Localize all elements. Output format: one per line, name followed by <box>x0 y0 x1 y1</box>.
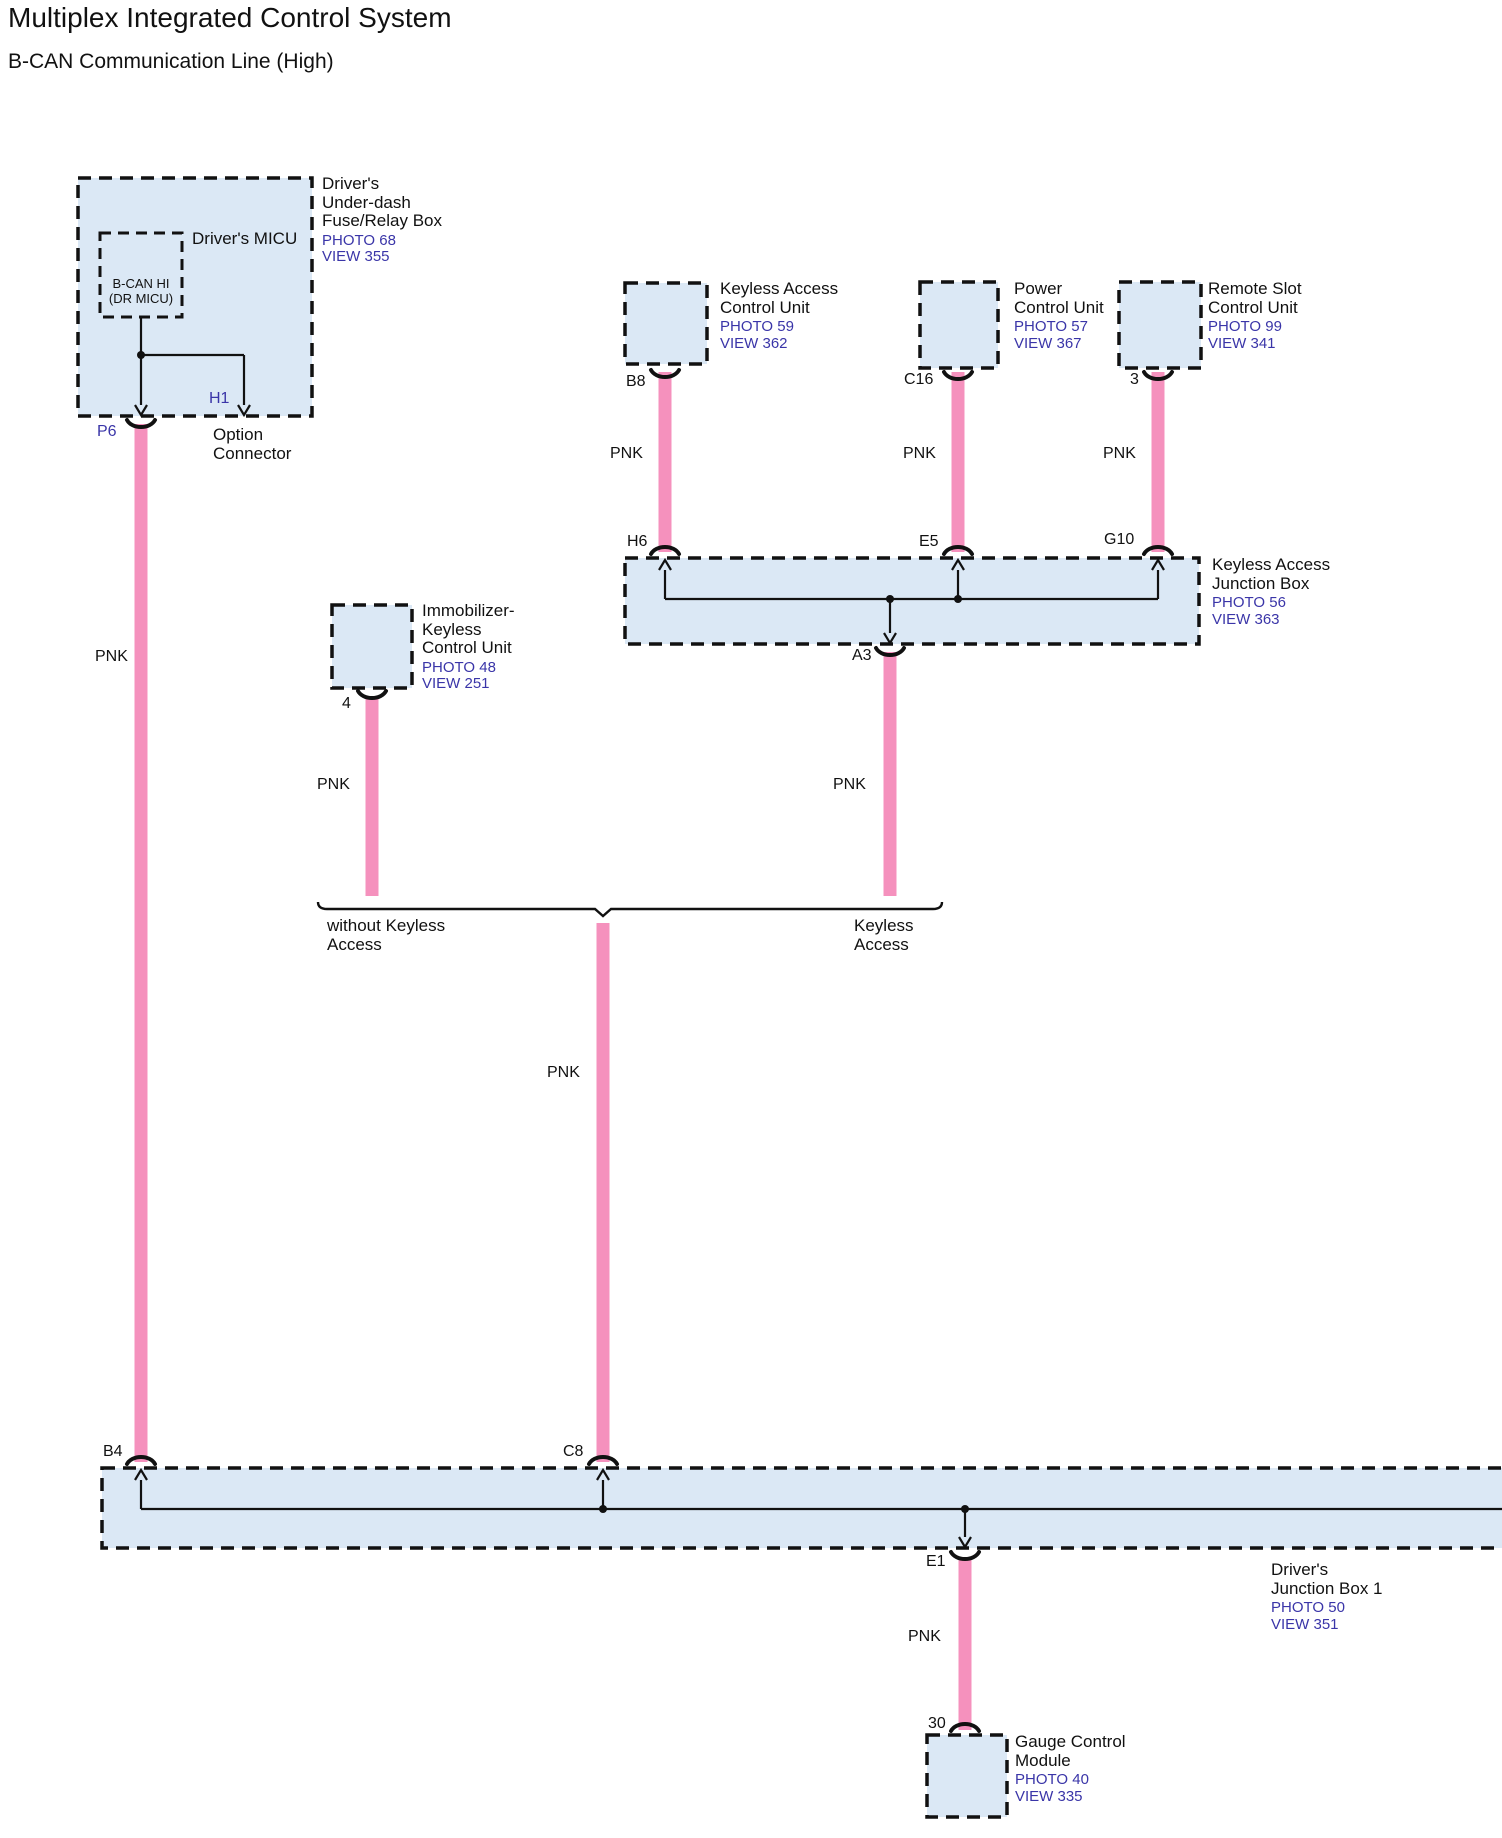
immobilizer-keyless-control-unit-label: Immobilizer- Keyless Control Unit PHOTO … <box>422 602 515 693</box>
keyless-access-control-unit-outline <box>625 283 707 364</box>
wire-e1-to-30 <box>959 1558 972 1730</box>
junction-dots <box>137 351 969 1513</box>
wire-color-label: PNK <box>1103 445 1136 463</box>
keyless-access-junction-box-label: Keyless Access Junction Box PHOTO 56 VIE… <box>1212 556 1330 628</box>
drivers-micu-label: Driver's MICU <box>192 230 297 249</box>
wire-c16-to-e5 <box>952 372 965 552</box>
photo-ref: PHOTO 57 <box>1014 319 1104 336</box>
component-name-line: Junction Box <box>1212 575 1330 594</box>
view-ref: VIEW 363 <box>1212 612 1330 629</box>
keyless-access-control-unit-label: Keyless Access Control Unit PHOTO 59 VIE… <box>720 280 838 352</box>
wire-branch-to-c8 <box>597 923 610 1462</box>
photo-ref: PHOTO 59 <box>720 319 838 336</box>
branch-brace <box>318 902 942 916</box>
label-line: Connector <box>213 445 291 464</box>
connector-4 <box>358 691 386 698</box>
label-line: without Keyless <box>327 917 445 936</box>
view-ref: VIEW 341 <box>1208 336 1302 353</box>
wire-color-label: PNK <box>903 445 936 463</box>
pin-label-e5: E5 <box>919 533 939 551</box>
view-ref: VIEW 367 <box>1014 336 1104 353</box>
wire-color-label: PNK <box>610 445 643 463</box>
component-ref: PHOTO 40 VIEW 335 <box>1015 1772 1126 1805</box>
branch-label-without-keyless: without Keyless Access <box>327 917 445 954</box>
wiring-diagram-page: Multiplex Integrated Control System B-CA… <box>0 0 1502 1838</box>
component-name-line: Driver's <box>322 175 442 194</box>
label-line: Access <box>854 936 914 955</box>
junction-dot <box>961 1505 969 1513</box>
component-name-line: Power <box>1014 280 1104 299</box>
view-ref: VIEW 355 <box>322 249 442 266</box>
component-ref: PHOTO 48 VIEW 251 <box>422 660 515 693</box>
pin-label-e1: E1 <box>926 1553 946 1571</box>
component-ref: PHOTO 56 VIEW 363 <box>1212 595 1330 628</box>
wire-color-label: PNK <box>95 648 128 666</box>
keyless-access-junction-box-outline <box>625 558 1199 644</box>
component-ref: PHOTO 68 VIEW 355 <box>322 233 442 266</box>
component-name-line: Keyless <box>422 621 515 640</box>
page-subtitle: B-CAN Communication Line (High) <box>8 50 334 74</box>
node-line: B-CAN HI <box>100 276 182 291</box>
view-ref: VIEW 335 <box>1015 1789 1126 1806</box>
component-ref: PHOTO 50 VIEW 351 <box>1271 1600 1383 1633</box>
component-name-line: Immobilizer- <box>422 602 515 621</box>
view-ref: VIEW 362 <box>720 336 838 353</box>
photo-ref: PHOTO 56 <box>1212 595 1330 612</box>
photo-ref: PHOTO 48 <box>422 660 515 677</box>
power-control-unit-label: Power Control Unit PHOTO 57 VIEW 367 <box>1014 280 1104 352</box>
drivers-junction-box-1-label: Driver's Junction Box 1 PHOTO 50 VIEW 35… <box>1271 1561 1383 1633</box>
power-control-unit-outline <box>920 282 998 368</box>
bcan-hi-node-label: B-CAN HI (DR MICU) <box>100 276 182 306</box>
pin-label-h6: H6 <box>627 533 647 551</box>
remote-slot-control-unit-label: Remote Slot Control Unit PHOTO 99 VIEW 3… <box>1208 280 1302 352</box>
junction-dot <box>954 595 962 603</box>
remote-slot-control-unit-outline <box>1119 282 1201 368</box>
option-connector-label: Option Connector <box>213 426 291 463</box>
wire-color-label: PNK <box>833 776 866 794</box>
pin-label-b8: B8 <box>626 373 646 391</box>
component-name-line: Module <box>1015 1752 1126 1771</box>
connector-e1 <box>951 1552 979 1559</box>
pin-label-30: 30 <box>928 1715 946 1733</box>
pin-label-g10: G10 <box>1104 531 1134 549</box>
component-name-line: Driver's <box>1271 1561 1383 1580</box>
junction-dot <box>886 595 894 603</box>
connector-p6 <box>127 420 155 427</box>
component-ref: PHOTO 57 VIEW 367 <box>1014 319 1104 352</box>
pin-label-c16: C16 <box>904 371 933 389</box>
junction-dot <box>137 351 145 359</box>
connector-a3 <box>876 648 904 655</box>
pin-label-3: 3 <box>1130 371 1139 389</box>
component-name-line: Control Unit <box>1208 299 1302 318</box>
pin-label-4: 4 <box>342 695 351 713</box>
photo-ref: PHOTO 40 <box>1015 1772 1126 1789</box>
wire-b8-to-h6 <box>659 372 672 552</box>
wire-color-label: PNK <box>317 776 350 794</box>
wire-color-label: PNK <box>547 1064 580 1082</box>
component-name-line: Remote Slot <box>1208 280 1302 299</box>
view-ref: VIEW 251 <box>422 676 515 693</box>
view-ref: VIEW 351 <box>1271 1617 1383 1634</box>
wire-color-label: PNK <box>908 1628 941 1646</box>
wire-a3-to-branch <box>884 652 897 896</box>
pin-label-b4: B4 <box>103 1443 123 1461</box>
branch-label-keyless: Keyless Access <box>854 917 914 954</box>
component-name-line: Fuse/Relay Box <box>322 212 442 231</box>
gauge-control-module-label: Gauge Control Module PHOTO 40 VIEW 335 <box>1015 1733 1126 1805</box>
pin-label-c8: C8 <box>563 1443 583 1461</box>
immobilizer-keyless-control-unit-outline <box>332 605 412 688</box>
pin-label-h1: H1 <box>209 390 229 408</box>
page-title: Multiplex Integrated Control System <box>8 2 452 34</box>
component-name-line: Keyless Access <box>720 280 838 299</box>
component-name-line: Control Unit <box>1014 299 1104 318</box>
component-name-line: Control Unit <box>422 639 515 658</box>
label-line: Option <box>213 426 291 445</box>
component-name-line: Control Unit <box>720 299 838 318</box>
wire-4-to-branch <box>366 696 379 896</box>
fuse-relay-box-label: Driver's Under-dash Fuse/Relay Box PHOTO… <box>322 175 442 266</box>
pin-label-p6: P6 <box>97 423 117 441</box>
junction-dot <box>599 1505 607 1513</box>
component-ref: PHOTO 59 VIEW 362 <box>720 319 838 352</box>
component-ref: PHOTO 99 VIEW 341 <box>1208 319 1302 352</box>
component-name-line: Keyless Access <box>1212 556 1330 575</box>
node-line: (DR MICU) <box>100 291 182 306</box>
gauge-control-module-outline <box>927 1735 1007 1817</box>
photo-ref: PHOTO 50 <box>1271 1600 1383 1617</box>
component-name-line: Gauge Control <box>1015 1733 1126 1752</box>
photo-ref: PHOTO 68 <box>322 233 442 250</box>
component-name-line: Under-dash <box>322 194 442 213</box>
photo-ref: PHOTO 99 <box>1208 319 1302 336</box>
label-line: Keyless <box>854 917 914 936</box>
pin-label-a3: A3 <box>852 647 872 665</box>
component-name-line: Junction Box 1 <box>1271 1580 1383 1599</box>
wire-p6-to-b4 <box>135 424 148 1462</box>
wire-3-to-g10 <box>1152 372 1165 552</box>
label-line: Access <box>327 936 445 955</box>
